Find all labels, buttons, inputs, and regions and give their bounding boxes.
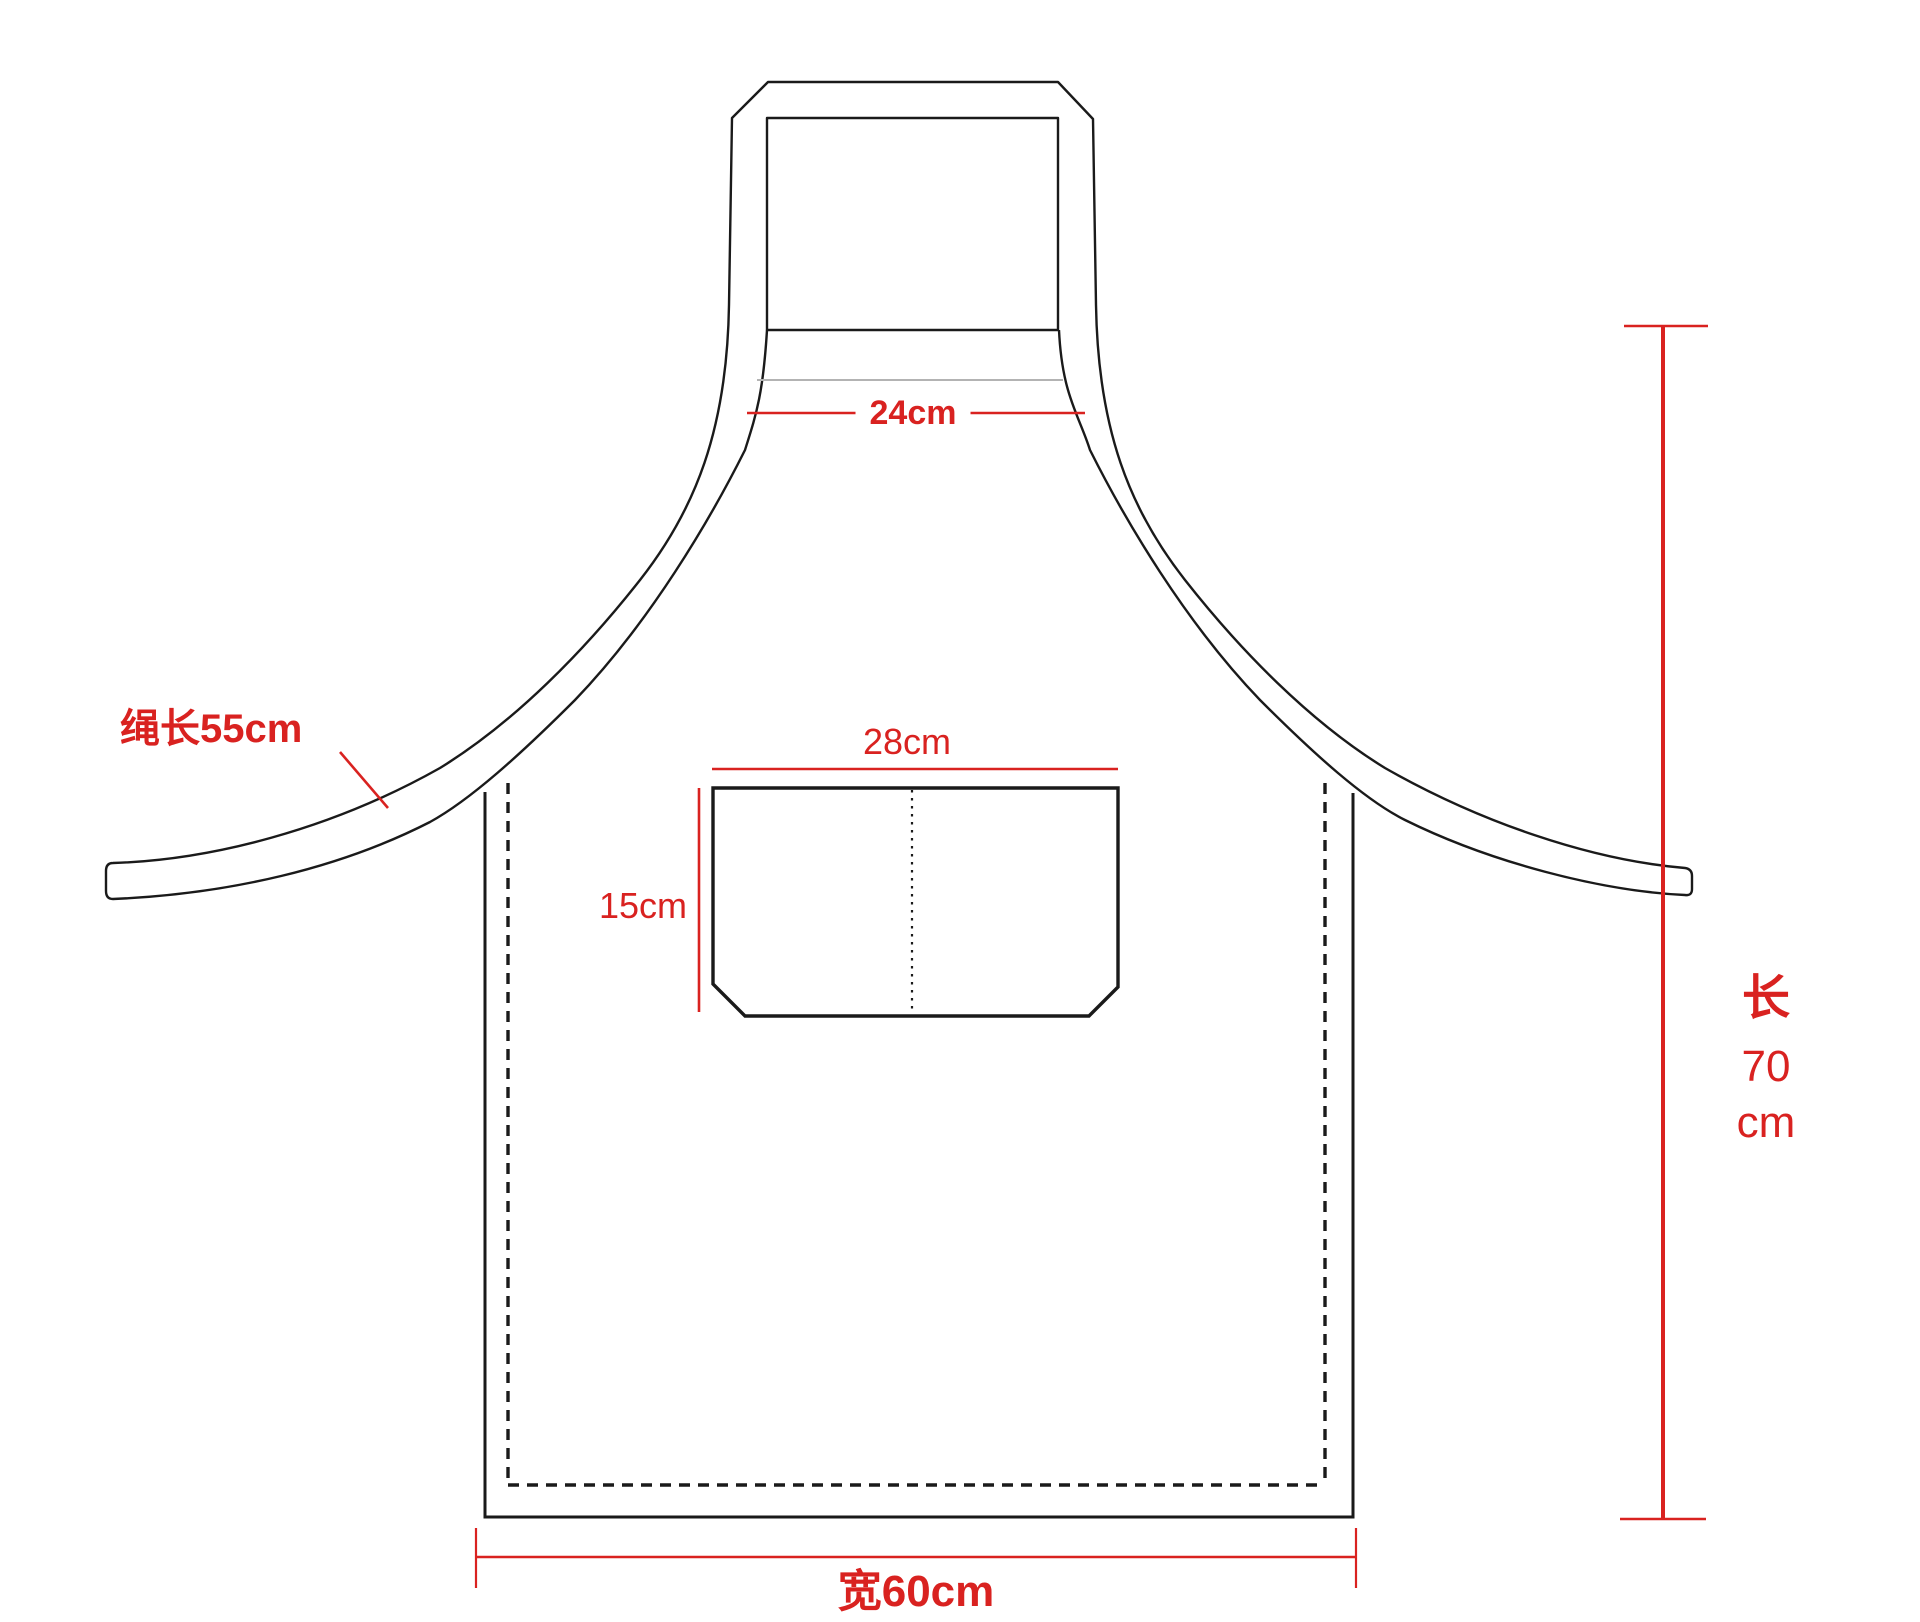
neck-width-label: 24cm bbox=[856, 396, 971, 430]
pocket-width-label: 28cm bbox=[863, 724, 951, 760]
apron-dimension-diagram: 24cm 绳长55cm 28cm 15cm 长 70 cm 宽60cm bbox=[0, 0, 1920, 1622]
apron-line-drawing bbox=[0, 0, 1920, 1622]
leader-line-strap bbox=[340, 752, 388, 808]
bottom-width-label: 宽60cm bbox=[838, 1570, 995, 1614]
length-label-char: 长 bbox=[1737, 975, 1796, 1023]
strap-length-label: 绳长55cm bbox=[120, 709, 302, 749]
pocket-height-label: 15cm bbox=[599, 888, 687, 924]
length-label-unit: cm bbox=[1737, 1101, 1796, 1145]
length-label-value: 70 bbox=[1737, 1045, 1796, 1089]
apron-outline bbox=[106, 82, 1692, 899]
pocket bbox=[713, 788, 1118, 1016]
neck-hole bbox=[767, 118, 1058, 330]
length-label: 长 70 cm bbox=[1737, 975, 1796, 1145]
